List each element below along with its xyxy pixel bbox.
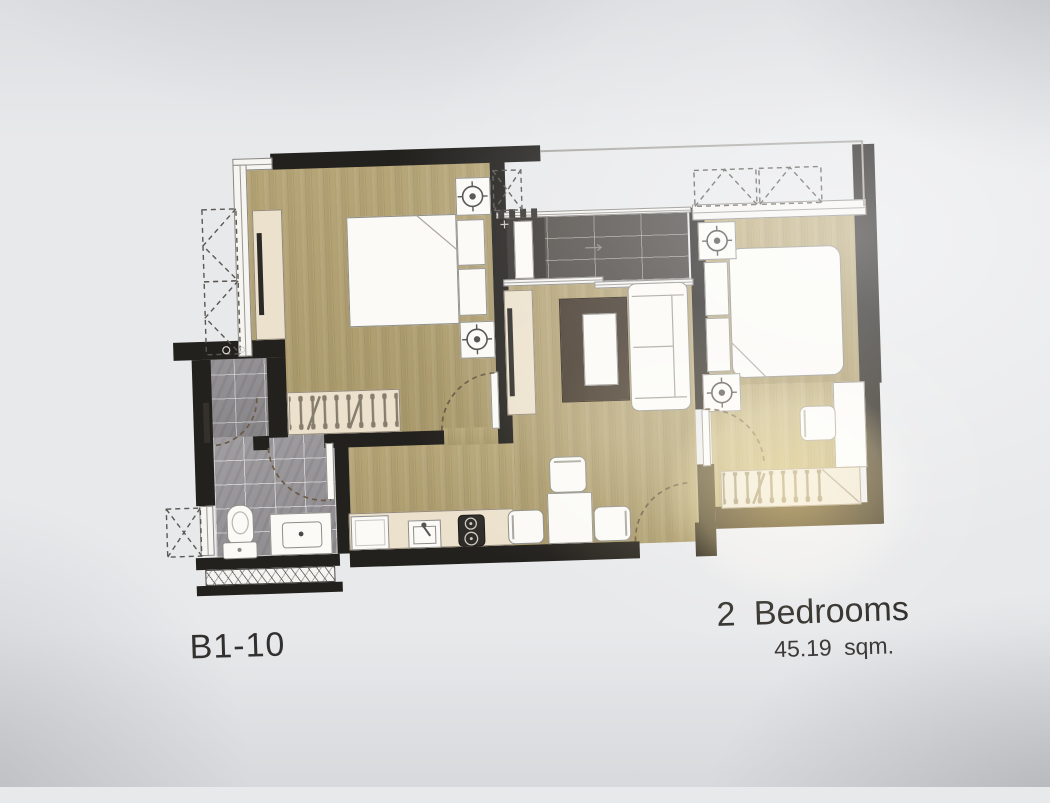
floorplan-photo: { "labels": { "unit_code": "B1-10", "uni… xyxy=(0,0,1050,787)
balcony-details xyxy=(500,217,601,253)
unit-area-label: 45.19 sqm. xyxy=(608,632,911,668)
lamp-icon xyxy=(702,225,733,256)
photo-content: B1-10 2 Bedrooms 45.19 sqm. xyxy=(0,0,1050,803)
slab-outline xyxy=(540,141,864,216)
bathroom-details xyxy=(223,344,304,552)
bedroom2-door-arc xyxy=(705,407,764,466)
entrance-door-arc xyxy=(634,483,693,542)
unit-code-label: B1-10 xyxy=(189,626,286,668)
shower-door-arc xyxy=(212,398,258,445)
bathroom-door-arc xyxy=(268,446,331,502)
ac-unit-symbol xyxy=(493,170,522,211)
lamp-icon xyxy=(457,181,488,212)
kitchen-details xyxy=(421,518,478,547)
bedroom1-door-arc xyxy=(440,373,498,431)
sofa-lines xyxy=(632,295,687,399)
wardrobe-hangers xyxy=(289,376,860,520)
plan-linework xyxy=(141,108,916,622)
lamp-icon xyxy=(462,324,493,355)
lamp-icon xyxy=(706,377,737,408)
floor-plan xyxy=(141,108,916,622)
